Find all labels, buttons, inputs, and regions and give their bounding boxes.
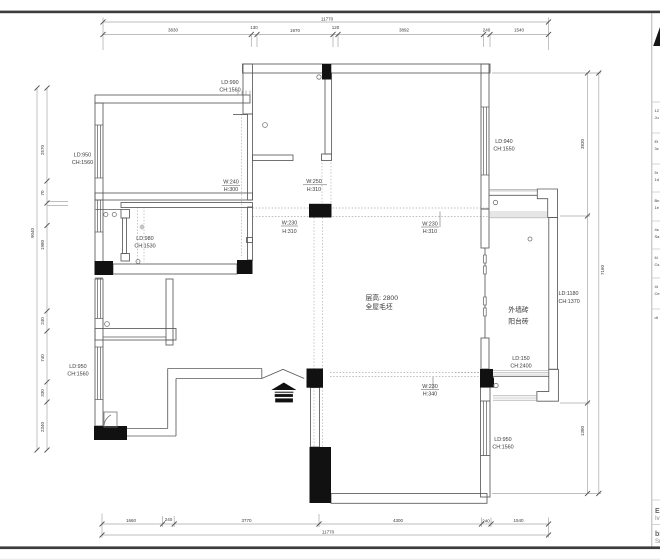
svg-text:330: 330 bbox=[40, 389, 45, 397]
svg-text:1980: 1980 bbox=[40, 239, 45, 250]
svg-text:2570: 2570 bbox=[40, 144, 45, 155]
svg-text:LD:150: LD:150 bbox=[512, 356, 529, 362]
svg-text:层高: 2800: 层高: 2800 bbox=[366, 293, 399, 302]
svg-text:3770: 3770 bbox=[241, 518, 252, 523]
svg-text:1540: 1540 bbox=[513, 518, 524, 523]
svg-text:Iv: Iv bbox=[655, 516, 660, 522]
svg-text:bS: bS bbox=[655, 531, 660, 538]
svg-text:3830: 3830 bbox=[168, 28, 179, 33]
svg-text:全屋毛坯: 全屋毛坯 bbox=[366, 302, 393, 311]
svg-text:H:310: H:310 bbox=[282, 229, 296, 235]
svg-text:740: 740 bbox=[40, 354, 45, 362]
svg-text:120: 120 bbox=[332, 25, 340, 30]
svg-text:LD:950: LD:950 bbox=[69, 364, 86, 370]
svg-text:240: 240 bbox=[40, 317, 45, 325]
svg-text:CH:1560: CH:1560 bbox=[72, 160, 93, 166]
svg-text:3c: 3c bbox=[655, 146, 659, 151]
svg-text:4300: 4300 bbox=[393, 518, 404, 523]
svg-text:9040: 9040 bbox=[30, 227, 35, 238]
svg-text:LD:980: LD:980 bbox=[136, 236, 153, 242]
svg-text:1660: 1660 bbox=[126, 518, 137, 523]
svg-text:W:240: W:240 bbox=[223, 180, 238, 186]
svg-text:CH:1560: CH:1560 bbox=[219, 88, 240, 94]
svg-text:CH:2400: CH:2400 bbox=[510, 364, 531, 370]
svg-text:3892: 3892 bbox=[399, 28, 410, 33]
svg-text:LD:950: LD:950 bbox=[494, 437, 511, 443]
svg-text:1d: 1d bbox=[655, 177, 659, 182]
svg-text:70: 70 bbox=[40, 190, 45, 196]
svg-text:CH:1560: CH:1560 bbox=[492, 445, 513, 451]
svg-text:240: 240 bbox=[482, 519, 490, 524]
svg-text:LD:1180: LD:1180 bbox=[559, 291, 579, 297]
svg-text:240: 240 bbox=[483, 28, 491, 33]
svg-text:CH:1530: CH:1530 bbox=[134, 244, 155, 250]
svg-text:7160: 7160 bbox=[600, 264, 605, 275]
svg-text:H:340: H:340 bbox=[423, 392, 437, 398]
svg-text:6i: 6i bbox=[655, 255, 658, 260]
svg-text:Ju: Ju bbox=[655, 115, 659, 120]
svg-text:LD:990: LD:990 bbox=[221, 80, 238, 86]
svg-text:Sn: Sn bbox=[655, 539, 660, 545]
svg-text:CH:1560: CH:1560 bbox=[67, 372, 88, 378]
svg-text:H:300: H:300 bbox=[224, 187, 238, 193]
svg-text:Ce: Ce bbox=[655, 291, 660, 296]
svg-text:W:230: W:230 bbox=[282, 221, 297, 227]
svg-text:11770: 11770 bbox=[322, 530, 335, 535]
svg-text:W:230: W:230 bbox=[422, 384, 437, 390]
svg-text:阳台砖: 阳台砖 bbox=[508, 317, 529, 326]
svg-text:2340: 2340 bbox=[40, 421, 45, 432]
svg-text:H:310: H:310 bbox=[307, 187, 321, 193]
svg-text:EI: EI bbox=[655, 508, 660, 515]
svg-text:12: 12 bbox=[655, 108, 660, 113]
svg-text:LD:940: LD:940 bbox=[495, 139, 512, 145]
svg-text:CH:1550: CH:1550 bbox=[493, 147, 514, 153]
svg-text:4s: 4s bbox=[655, 227, 659, 232]
svg-text:130: 130 bbox=[250, 25, 258, 30]
svg-text:LD:950: LD:950 bbox=[74, 153, 91, 159]
svg-text:1540: 1540 bbox=[514, 27, 525, 32]
svg-text:外墙砖: 外墙砖 bbox=[508, 305, 529, 314]
svg-text:Sa: Sa bbox=[655, 234, 660, 239]
svg-text:3830: 3830 bbox=[580, 138, 585, 149]
svg-text:1380: 1380 bbox=[580, 425, 585, 436]
svg-text:1970: 1970 bbox=[290, 28, 301, 33]
svg-text:11770: 11770 bbox=[321, 16, 334, 21]
svg-text:W:250: W:250 bbox=[306, 179, 321, 185]
svg-text:H:310: H:310 bbox=[423, 229, 437, 235]
svg-text:240: 240 bbox=[165, 517, 173, 522]
svg-text:1e: 1e bbox=[655, 205, 660, 210]
svg-text:W:230: W:230 bbox=[422, 222, 437, 228]
svg-text:Cs: Cs bbox=[655, 262, 660, 267]
svg-text:Bn: Bn bbox=[655, 198, 660, 203]
svg-text:CH:1370: CH:1370 bbox=[559, 299, 580, 305]
